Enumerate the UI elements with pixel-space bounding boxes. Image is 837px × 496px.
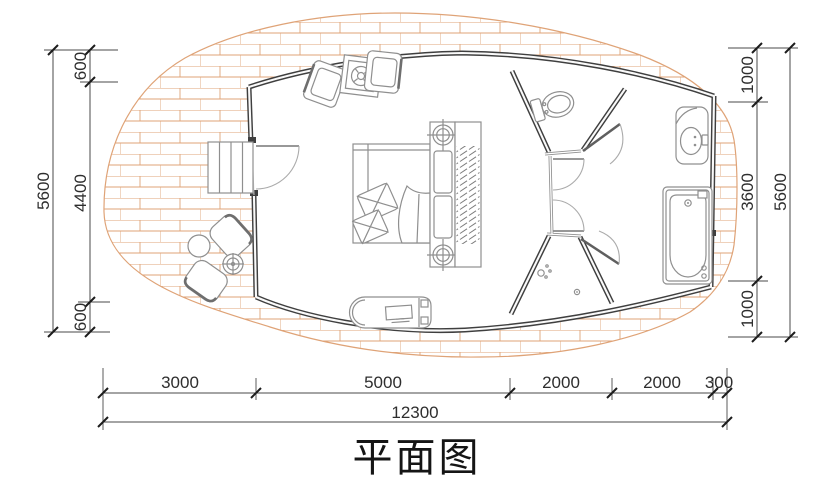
dim-label: 600	[71, 52, 90, 80]
headboard-unit	[427, 119, 481, 271]
bathtub	[663, 187, 712, 284]
dim-label: 3000	[161, 373, 199, 392]
double-bed	[352, 144, 430, 244]
entry-steps	[208, 142, 253, 193]
floor-plan-svg: 600 4400 600 5600 1000 3600 1000 5600 30…	[0, 0, 837, 496]
outdoor-round-table	[188, 235, 210, 257]
dim-label: 600	[71, 303, 90, 331]
dim-label: 4400	[71, 174, 90, 212]
dim-label: 3600	[738, 173, 757, 211]
wash-basin	[676, 107, 708, 164]
dim-label: 5000	[364, 373, 402, 392]
dim-label: 5600	[34, 172, 53, 210]
armchair-right	[364, 50, 402, 93]
dim-label: 1000	[738, 56, 757, 94]
duvet	[399, 186, 430, 243]
tv-cabinet	[349, 297, 431, 328]
wardrobe	[455, 122, 481, 267]
floor-plan-canvas: 600 4400 600 5600 1000 3600 1000 5600 30…	[0, 0, 837, 496]
dim-label: 5600	[771, 173, 790, 211]
dim-label: 1000	[738, 290, 757, 328]
dim-label: 2000	[542, 373, 580, 392]
dim-label: 2000	[643, 373, 681, 392]
dim-label: 12300	[391, 403, 438, 422]
dim-label: 300	[705, 373, 733, 392]
drawing-title: 平面图	[353, 436, 482, 480]
